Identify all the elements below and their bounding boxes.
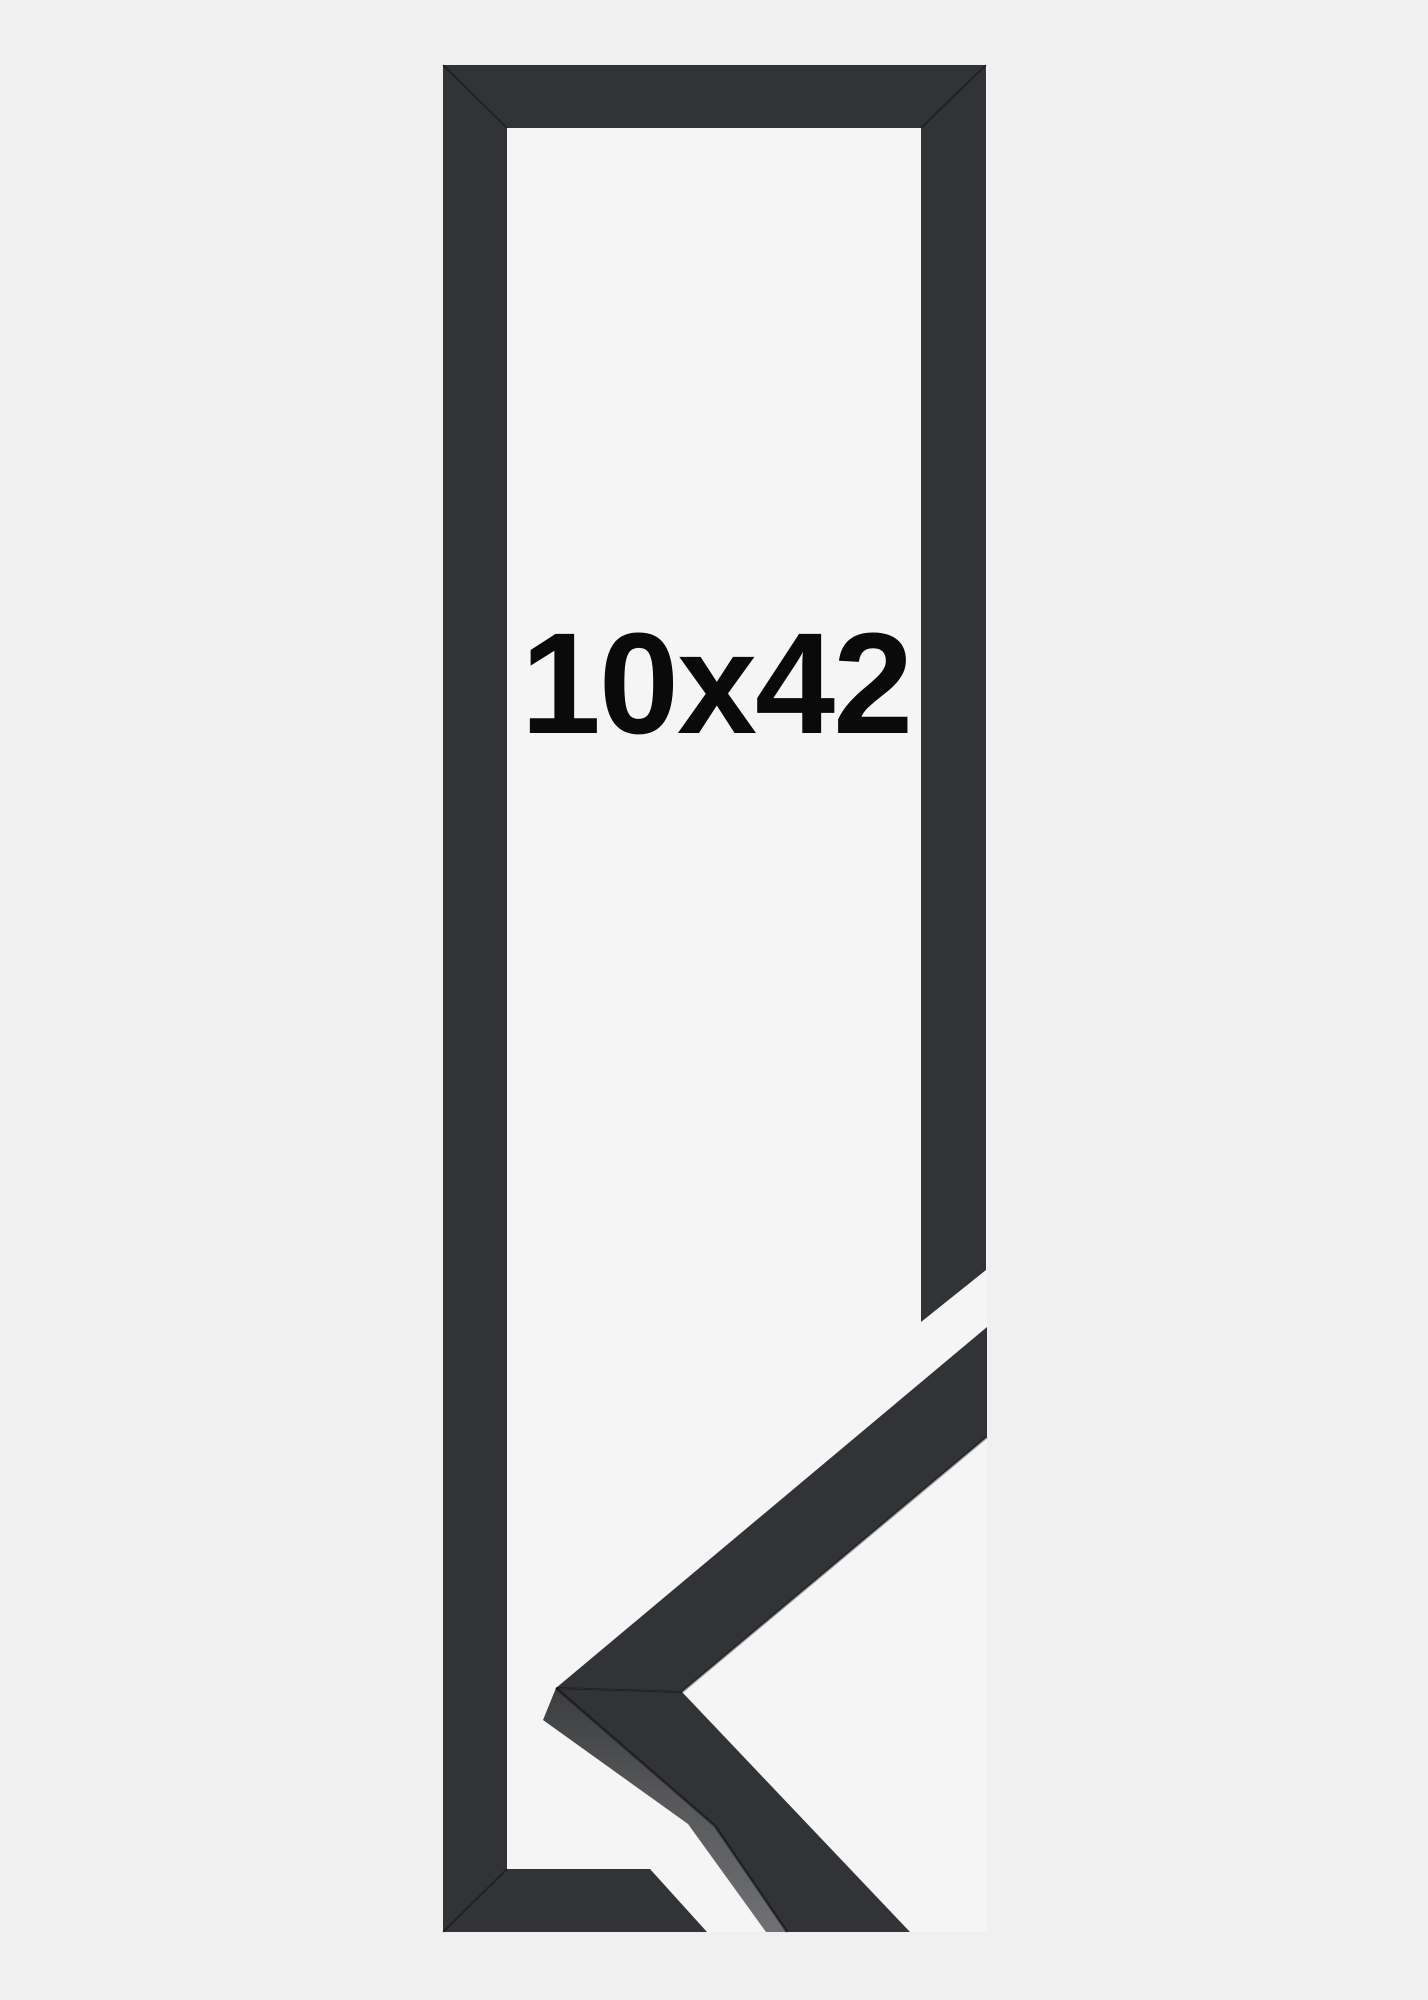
size-label: 10x42 bbox=[521, 603, 911, 764]
frame-product-illustration: 10x42 bbox=[0, 0, 1428, 2000]
product-photo: 10x42 bbox=[0, 0, 1428, 2000]
